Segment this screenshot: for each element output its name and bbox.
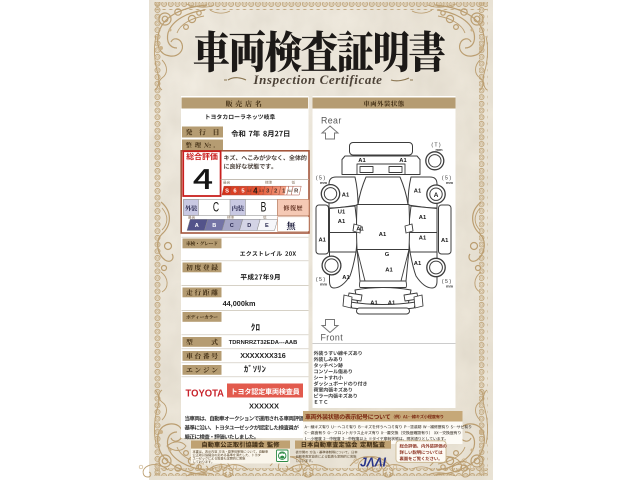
svg-text:A1: A1 [399,158,407,164]
svg-text:TOYOTA: TOYOTA [186,388,225,400]
svg-text:A1: A1 [338,219,346,225]
svg-text:mm: mm [320,282,328,287]
svg-text:E: E [265,223,269,229]
svg-text:mm: mm [446,180,454,185]
svg-text:A1: A1 [414,189,422,195]
svg-text:Inspection Certificate: Inspection Certificate [252,72,382,87]
svg-text:mm: mm [435,147,443,152]
svg-text:D: D [247,223,251,229]
svg-text:A1: A1 [356,227,364,233]
svg-text:A: A [434,192,439,199]
svg-text:A1: A1 [370,301,378,307]
svg-text:2: 2 [274,189,277,195]
svg-text:4: 4 [253,187,258,196]
svg-text:mm: mm [446,284,454,289]
svg-text:A: A [195,223,199,229]
svg-text:XXXXXXX316: XXXXXXX316 [240,351,286,360]
svg-text:TDRNRRZT32EDA---AAB: TDRNRRZT32EDA---AAB [229,340,298,346]
svg-text:A1: A1 [419,215,427,221]
svg-text:Front: Front [321,333,344,343]
svg-text:S: S [225,189,229,195]
svg-text:A1: A1 [414,261,422,267]
svg-text:A1: A1 [342,275,350,281]
svg-text:A1: A1 [385,268,393,274]
svg-text:A1: A1 [318,238,326,244]
svg-text:G: G [385,252,390,258]
svg-text:A1: A1 [419,236,427,242]
svg-text:B: B [212,223,216,229]
svg-text:XXXXXX: XXXXXX [249,402,279,411]
svg-text:mm: mm [320,180,328,185]
svg-text:C: C [230,223,234,229]
svg-text:Rear: Rear [321,116,342,126]
svg-text:U1: U1 [338,210,346,216]
svg-text:B: B [261,201,267,215]
svg-text:A1: A1 [388,301,396,307]
svg-text:C: C [213,201,219,215]
svg-text:A1: A1 [441,238,449,244]
svg-text:A1: A1 [358,158,366,164]
svg-text:44,000km: 44,000km [223,299,256,308]
svg-text:JΛΛI: JΛΛI [360,455,386,470]
svg-text:A1: A1 [342,193,350,199]
svg-text:A1: A1 [379,232,387,238]
